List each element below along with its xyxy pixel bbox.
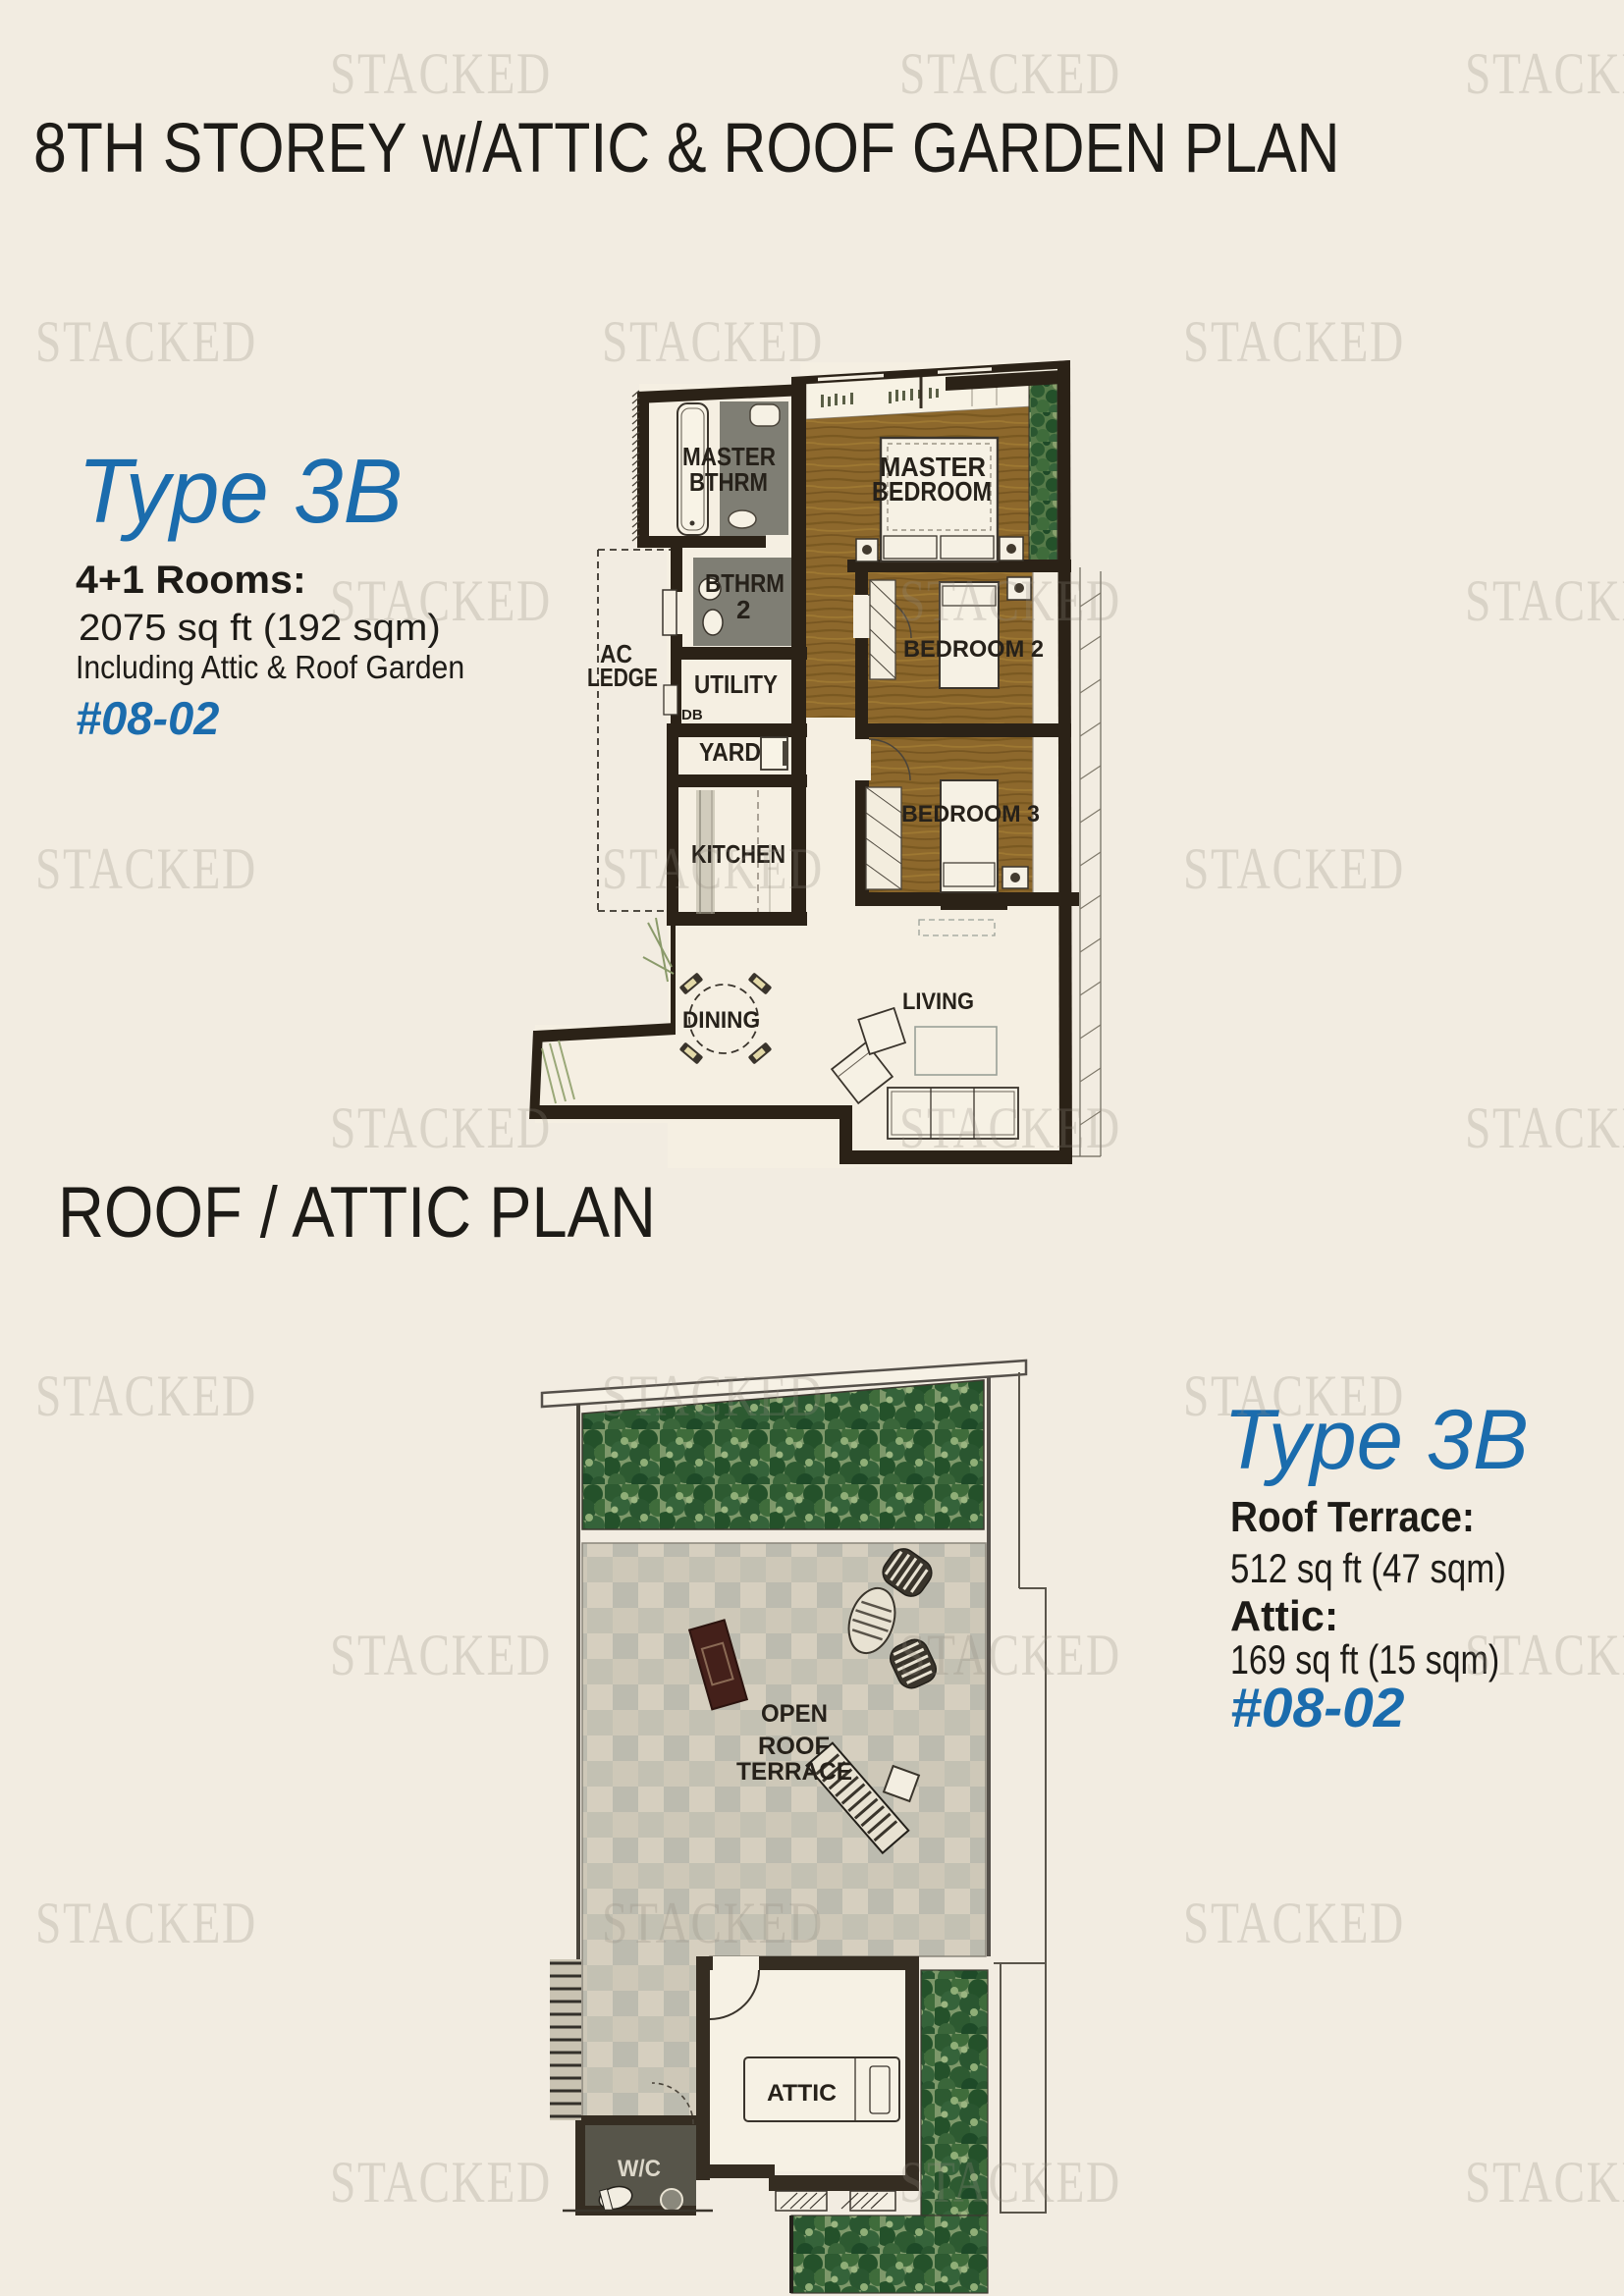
svg-text:ROOF: ROOF [758, 1733, 830, 1760]
svg-text:TERRACE: TERRACE [736, 1758, 852, 1786]
svg-text:OPEN: OPEN [761, 1700, 828, 1728]
svg-text:ATTIC: ATTIC [767, 2080, 837, 2107]
svg-text:W/C: W/C [618, 2156, 661, 2182]
